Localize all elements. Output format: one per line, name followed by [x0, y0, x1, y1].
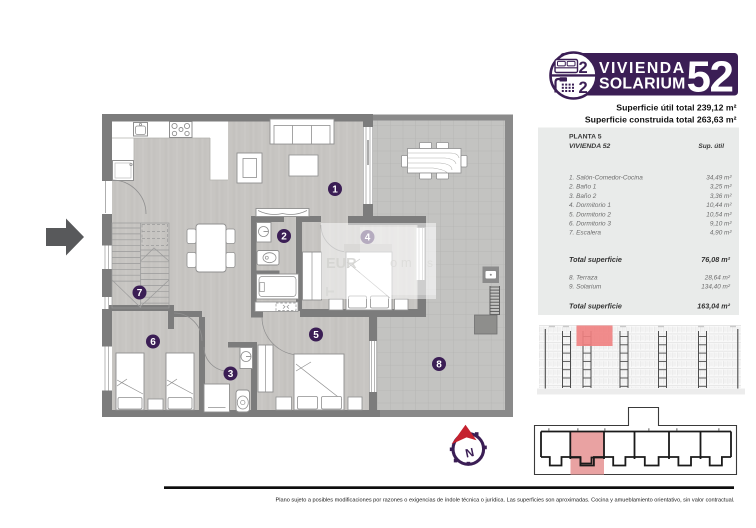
svg-text:2: 2: [579, 59, 588, 77]
svg-text:o m: o m: [390, 255, 412, 270]
svg-text:52: 52: [687, 53, 733, 102]
svg-text:VIVIENDA 52: VIVIENDA 52: [569, 143, 611, 150]
svg-text:3. Baño 2: 3. Baño 2: [569, 193, 597, 200]
svg-text:5: 5: [313, 330, 319, 341]
svg-text:Plano sujeto a posibles modifi: Plano sujeto a posibles modificaciones p…: [276, 498, 735, 504]
svg-text:4. Dormitorio 1: 4. Dormitorio 1: [569, 202, 611, 209]
svg-text:2. Baño 1: 2. Baño 1: [568, 184, 597, 191]
svg-text:76,08 m²: 76,08 m²: [701, 255, 730, 264]
svg-text:Sup. útil: Sup. útil: [698, 143, 724, 150]
svg-text:10,44 m²: 10,44 m²: [706, 202, 732, 209]
svg-text:2: 2: [579, 79, 588, 97]
svg-text:VIVIENDA: VIVIENDA: [599, 60, 686, 77]
svg-text:Total superficie: Total superficie: [569, 255, 622, 264]
svg-text:28,64 m²: 28,64 m²: [704, 275, 731, 282]
svg-text:8: 8: [436, 359, 442, 370]
svg-text:6. Dormitorio 3: 6. Dormitorio 3: [569, 221, 611, 228]
svg-text:9. Solarium: 9. Solarium: [569, 284, 602, 291]
svg-text:2: 2: [281, 231, 287, 242]
svg-text:7. Escalera: 7. Escalera: [569, 230, 601, 237]
svg-text:SOLARIUM: SOLARIUM: [599, 76, 686, 93]
svg-text:10,54 m²: 10,54 m²: [706, 211, 732, 218]
svg-text:3,25 m²: 3,25 m²: [710, 184, 733, 191]
svg-text:Total superficie: Total superficie: [569, 302, 622, 311]
svg-text:3,36 m²: 3,36 m²: [710, 193, 733, 200]
svg-text:Superficie útil total 239,12 m: Superficie útil total 239,12 m²: [616, 103, 736, 113]
svg-text:s: s: [427, 256, 433, 270]
svg-text:6: 6: [150, 337, 156, 348]
svg-text:EUR: EUR: [326, 256, 357, 272]
svg-text:163,04 m²: 163,04 m²: [697, 302, 730, 311]
svg-text:1: 1: [332, 184, 338, 195]
svg-text:PLANTA 5: PLANTA 5: [569, 134, 602, 141]
svg-text:Superficie construida total 26: Superficie construida total 263,63 m²: [585, 115, 737, 125]
svg-text:34,49 m²: 34,49 m²: [706, 175, 732, 182]
svg-text:5. Dormitorio 2: 5. Dormitorio 2: [569, 211, 611, 218]
svg-text:3: 3: [228, 369, 234, 380]
svg-text:4,90 m²: 4,90 m²: [710, 230, 733, 237]
svg-text:9,10 m²: 9,10 m²: [710, 221, 733, 228]
svg-text:7: 7: [137, 288, 143, 299]
svg-text:1. Salón-Comedor-Cocina: 1. Salón-Comedor-Cocina: [569, 175, 643, 182]
svg-text:134,40 m²: 134,40 m²: [701, 284, 731, 291]
svg-text:8. Terraza: 8. Terraza: [569, 275, 598, 282]
